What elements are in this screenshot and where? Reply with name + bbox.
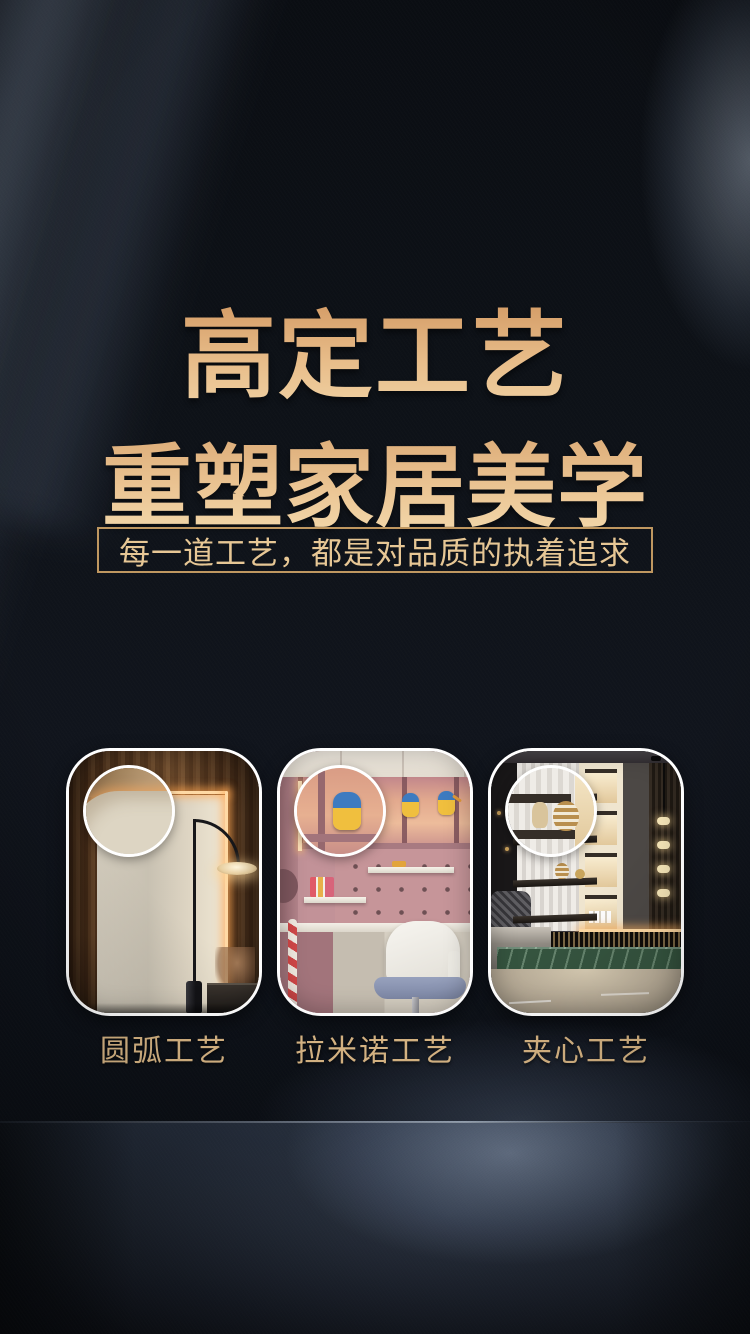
craft-item-arc: 圆弧工艺	[66, 748, 262, 1070]
magnified-figurine	[333, 792, 361, 830]
fabric-panel	[623, 763, 649, 931]
card-photo-kids-study[interactable]	[277, 748, 473, 1016]
gold-pot	[575, 869, 585, 879]
toy-car	[392, 861, 406, 867]
magnifier-circle	[83, 765, 175, 857]
promo-page: { "header": { "title_line1": "高定工艺", "ti…	[0, 0, 750, 1334]
magnified-shelf-board	[297, 834, 383, 842]
ceiling-spotlight	[651, 756, 661, 761]
subtitle-bordered-box: 每一道工艺，都是对品质的执着追求	[97, 527, 653, 573]
lit-slat-base	[545, 932, 681, 947]
magnifier-circle	[294, 765, 386, 857]
pendant-bulb	[657, 865, 670, 873]
card-caption-arc: 圆弧工艺	[66, 1026, 262, 1070]
floor-lamp-shade	[217, 862, 257, 875]
pendant-bulb	[657, 889, 670, 897]
floor-shadow	[69, 1003, 259, 1013]
magnified-striped-jar	[553, 801, 579, 831]
wall-shelf-upper	[368, 867, 454, 873]
magnified-ornament	[532, 802, 548, 828]
striped-pole	[288, 919, 297, 1013]
figurine-1	[402, 793, 419, 817]
floor-spotlight-glow	[0, 1123, 750, 1334]
wall-shelf-lower	[304, 897, 366, 903]
striped-jar	[555, 863, 569, 879]
craft-item-sandwich: 夹心工艺	[488, 748, 684, 1070]
magnified-rounded-corner	[83, 791, 175, 857]
card-photo-bedroom-arc[interactable]	[66, 748, 262, 1016]
wood-slat-column	[649, 763, 681, 947]
pendant-wire	[663, 763, 665, 817]
polished-floor	[491, 969, 681, 1013]
chair-post	[412, 997, 419, 1013]
craft-cards-row: 圆弧工艺	[0, 748, 750, 1070]
card-caption-sandwich: 夹心工艺	[488, 1026, 684, 1070]
chair-seat	[374, 977, 466, 999]
patterned-sofa	[491, 891, 531, 931]
magnifier-circle	[505, 765, 597, 857]
card-caption-lamello: 拉米诺工艺	[277, 1026, 473, 1070]
craft-item-lamello: 拉米诺工艺	[277, 748, 473, 1070]
bookcase-accent-light-1	[497, 811, 501, 815]
green-marble-plinth	[497, 947, 681, 971]
pendant-bulb	[657, 841, 670, 849]
page-title-line1: 高定工艺	[0, 302, 750, 412]
magnified-shelf-board	[505, 830, 575, 839]
pendant-bulb	[657, 817, 670, 825]
card-photo-living-room[interactable]	[488, 748, 684, 1016]
picture-books	[310, 877, 334, 897]
subtitle-text: 每一道工艺，都是对品质的执着追求	[119, 528, 631, 573]
